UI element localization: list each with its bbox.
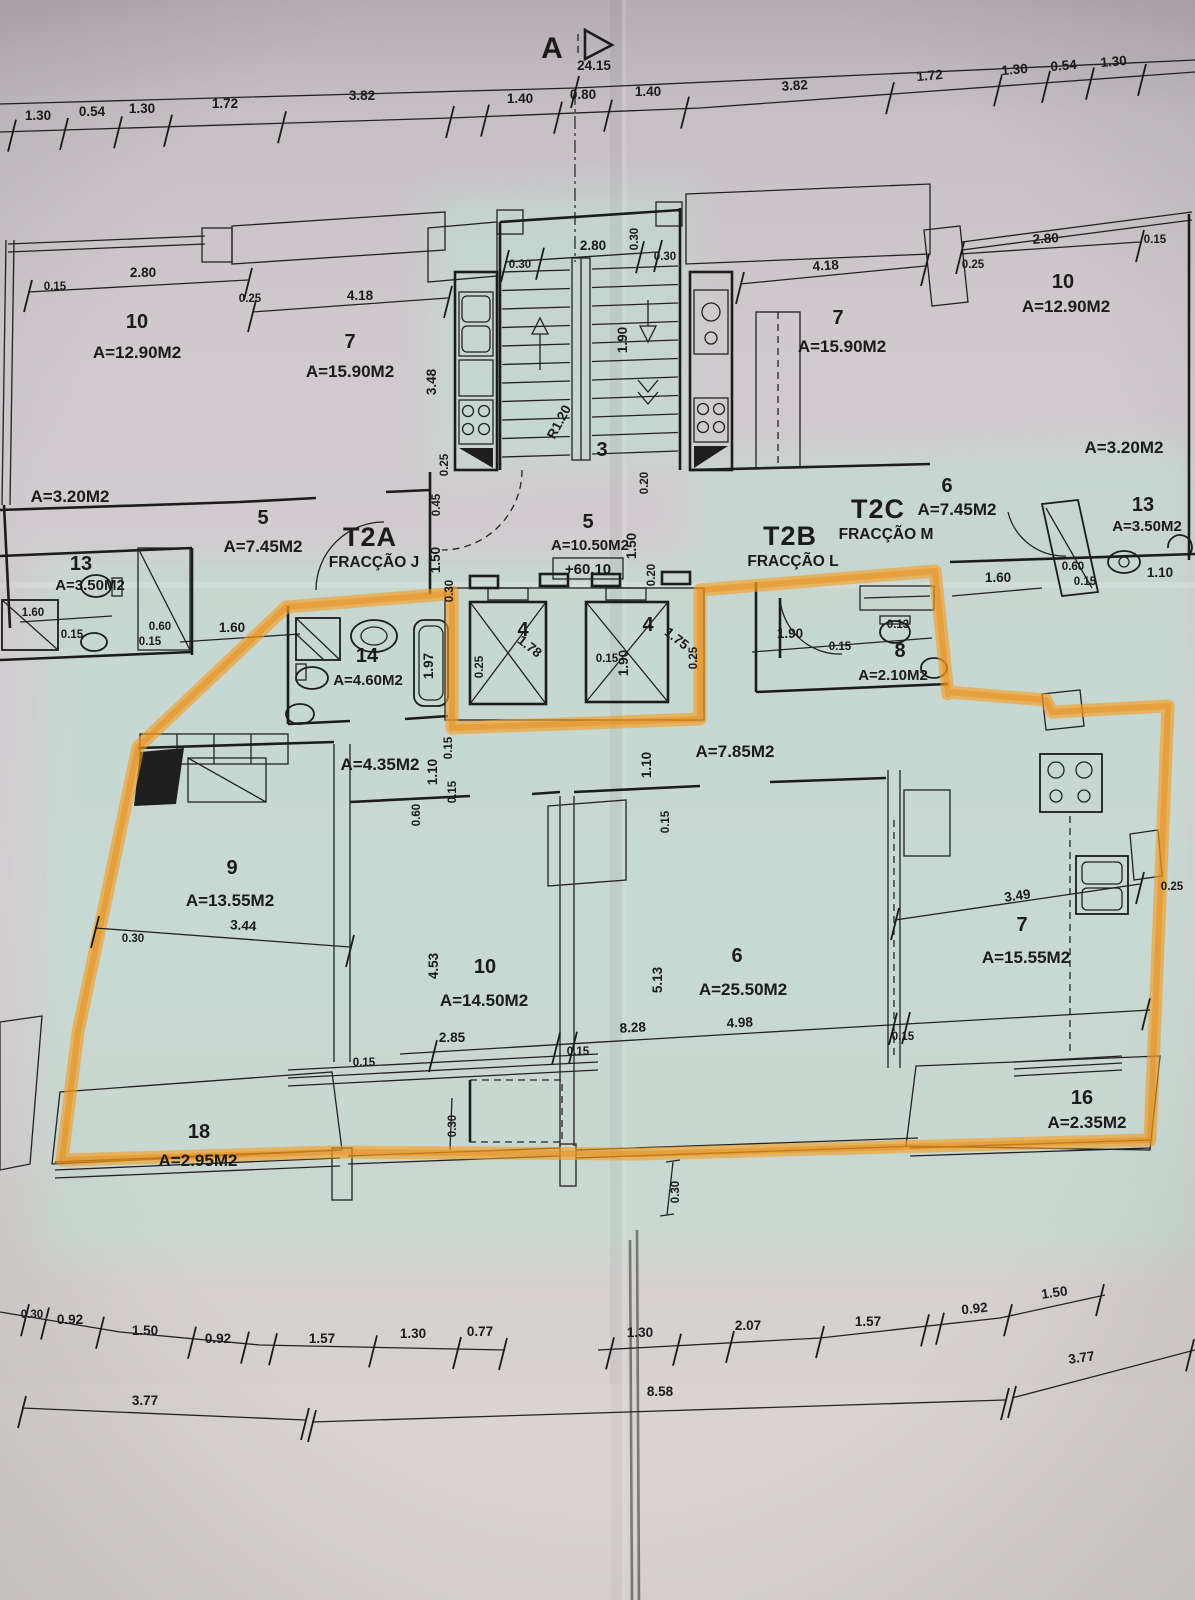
dim-label: 0.25 bbox=[962, 259, 985, 271]
room-area: A=2.35M2 bbox=[1048, 1113, 1127, 1132]
dim-label: 0.30 bbox=[444, 580, 456, 602]
room-area: A=14.50M2 bbox=[440, 991, 528, 1010]
level-label: +60.10 bbox=[565, 561, 611, 578]
room-area: A=10.50M2 bbox=[551, 537, 629, 554]
dim-label: 4.53 bbox=[426, 952, 441, 979]
dim-label: 1.30 bbox=[1100, 53, 1127, 70]
room-number: 10 bbox=[126, 311, 148, 333]
dim-label: 2.80 bbox=[130, 265, 156, 280]
room-area: A=25.50M2 bbox=[699, 980, 787, 999]
dim-label: 0.13 bbox=[887, 619, 909, 631]
room-area: A=15.90M2 bbox=[798, 337, 886, 356]
dim-label: 0.15 bbox=[447, 780, 459, 803]
dim-label: 2.80 bbox=[580, 238, 606, 253]
dim-label: 1.40 bbox=[635, 84, 661, 99]
dim-label: 1.30 bbox=[25, 108, 51, 123]
room-number: 8 bbox=[894, 640, 905, 662]
dim-label: 1.30 bbox=[129, 101, 155, 116]
room-area: A=3.50M2 bbox=[1112, 518, 1182, 535]
room-number: 4 bbox=[642, 614, 654, 636]
room-area: A=15.55M2 bbox=[982, 948, 1070, 967]
dim-label: 1.90 bbox=[616, 650, 631, 676]
dim-label: 8.58 bbox=[647, 1384, 674, 1399]
dim-label: 5.13 bbox=[650, 966, 665, 993]
dim-label: 1.97 bbox=[421, 653, 436, 679]
dim-label: 3.77 bbox=[132, 1393, 158, 1408]
dim-label: 1.57 bbox=[855, 1314, 881, 1329]
dim-label: 1.10 bbox=[1147, 565, 1173, 580]
dim-label: 1.30 bbox=[627, 1325, 653, 1340]
dim-label: 1.30 bbox=[400, 1326, 426, 1341]
dim-label: 0.15 bbox=[1074, 576, 1097, 588]
room-number: 3 bbox=[596, 439, 607, 461]
room-area: A=2.10M2 bbox=[858, 667, 928, 684]
room-area: A=7.45M2 bbox=[224, 537, 303, 556]
dim-label: 0.15 bbox=[443, 736, 455, 759]
dim-label: 2.80 bbox=[1032, 230, 1059, 247]
section-marker-label: A bbox=[541, 32, 563, 65]
dim-label: 1.90 bbox=[615, 327, 630, 353]
dim-label: 4.18 bbox=[347, 288, 374, 303]
room-area: A=7.85M2 bbox=[696, 742, 775, 761]
room-number: 6 bbox=[731, 945, 742, 967]
dim-label: 0.92 bbox=[205, 1331, 231, 1346]
room-number: 13 bbox=[1132, 494, 1154, 516]
dim-label: 1.10 bbox=[639, 752, 654, 778]
dim-label: 1.90 bbox=[777, 626, 803, 641]
fraction-code: T2C bbox=[851, 494, 905, 524]
room-number: 18 bbox=[188, 1121, 210, 1143]
dim-label: 4.18 bbox=[812, 257, 840, 274]
room-area: A=7.45M2 bbox=[918, 500, 997, 519]
room-number: 13 bbox=[70, 553, 92, 575]
dim-label: 1.72 bbox=[916, 67, 943, 84]
dim-label: 1.10 bbox=[425, 759, 440, 785]
room-number: 7 bbox=[344, 331, 355, 353]
dim-label: 8.28 bbox=[619, 1019, 647, 1035]
dim-label: 0.25 bbox=[439, 453, 451, 476]
dim-label: 1.50 bbox=[428, 547, 443, 573]
room-number: 9 bbox=[226, 857, 237, 879]
room-number: 10 bbox=[1052, 271, 1074, 293]
dim-label: 0.30 bbox=[122, 933, 144, 945]
fraction-code: T2A bbox=[343, 522, 397, 552]
floor-plan-photo: A 24.15 1.30 0.54 1.30 1.72 3.82 1.40 0.… bbox=[0, 0, 1195, 1600]
room-area: A=12.90M2 bbox=[1022, 297, 1110, 316]
dim-label: 3.44 bbox=[230, 917, 258, 934]
dim-label: 0.15 bbox=[61, 629, 84, 641]
dim-label: 0.20 bbox=[639, 472, 651, 494]
fraction-name: FRACÇÃO M bbox=[839, 525, 934, 543]
room-area: A=3.50M2 bbox=[55, 577, 125, 594]
dim-label: 1.40 bbox=[507, 91, 533, 106]
dim-label: 0.15 bbox=[139, 636, 162, 648]
room-area: A=12.90M2 bbox=[93, 343, 181, 362]
dim-label: 0.15 bbox=[829, 641, 852, 653]
dim-label: 1.60 bbox=[985, 570, 1011, 585]
dim-label: 24.15 bbox=[577, 58, 611, 73]
dim-label: 0.20 bbox=[646, 564, 658, 586]
room-area: A=3.20M2 bbox=[31, 487, 110, 506]
dim-label: 4.98 bbox=[726, 1014, 754, 1030]
dim-label: 0.60 bbox=[411, 804, 423, 826]
dim-label: 3.82 bbox=[781, 77, 808, 94]
dim-label: 0.92 bbox=[961, 1300, 989, 1318]
dim-label: 0.15 bbox=[1144, 234, 1167, 246]
room-area: A=15.90M2 bbox=[306, 362, 394, 381]
dim-label: 2.85 bbox=[439, 1030, 466, 1045]
room-number: 7 bbox=[832, 307, 843, 329]
room-area: A=3.20M2 bbox=[1085, 438, 1164, 457]
dim-label: 0.30 bbox=[670, 1181, 682, 1203]
dim-label: 0.25 bbox=[1161, 881, 1184, 893]
fraction-code: T2B bbox=[763, 521, 817, 551]
dim-label: 0.54 bbox=[79, 104, 106, 119]
room-number: 5 bbox=[582, 511, 593, 533]
room-area: A=4.35M2 bbox=[341, 755, 420, 774]
fraction-name: FRACÇÃO J bbox=[329, 553, 419, 571]
dim-label: 1.60 bbox=[22, 607, 44, 619]
room-number: 7 bbox=[1016, 914, 1027, 936]
room-number: 6 bbox=[941, 475, 952, 497]
dim-label: 0.15 bbox=[353, 1057, 376, 1069]
dim-label: 1.60 bbox=[219, 620, 245, 635]
dim-label: 0.25 bbox=[474, 655, 486, 678]
room-area: A=13.55M2 bbox=[186, 891, 274, 910]
room-number: 10 bbox=[474, 956, 496, 978]
room-number: 16 bbox=[1071, 1087, 1093, 1109]
room-number: 5 bbox=[257, 507, 268, 529]
dim-label: 0.60 bbox=[149, 621, 171, 633]
room-area: A=4.60M2 bbox=[333, 672, 403, 689]
dim-label: 0.25 bbox=[688, 646, 700, 669]
room-number: 14 bbox=[356, 645, 379, 667]
fraction-name: FRACÇÃO L bbox=[747, 552, 838, 570]
dim-label: 3.48 bbox=[424, 368, 439, 395]
dim-label: 0.30 bbox=[447, 1115, 459, 1137]
floor-plan: A 24.15 1.30 0.54 1.30 1.72 3.82 1.40 0.… bbox=[0, 0, 1195, 1600]
dim-label: 0.45 bbox=[431, 493, 443, 516]
dim-label: 1.57 bbox=[309, 1331, 335, 1346]
dim-label: 0.77 bbox=[467, 1324, 493, 1339]
room-area: A=2.95M2 bbox=[159, 1151, 238, 1170]
dim-label: 0.30 bbox=[629, 228, 641, 250]
dim-label: 0.15 bbox=[660, 810, 672, 833]
dim-label: 2.07 bbox=[735, 1318, 761, 1333]
dim-label: 0.25 bbox=[239, 293, 262, 305]
dim-label: 0.60 bbox=[1062, 561, 1084, 573]
dim-label: 3.82 bbox=[349, 88, 375, 103]
dim-label: 1.30 bbox=[1001, 61, 1028, 78]
